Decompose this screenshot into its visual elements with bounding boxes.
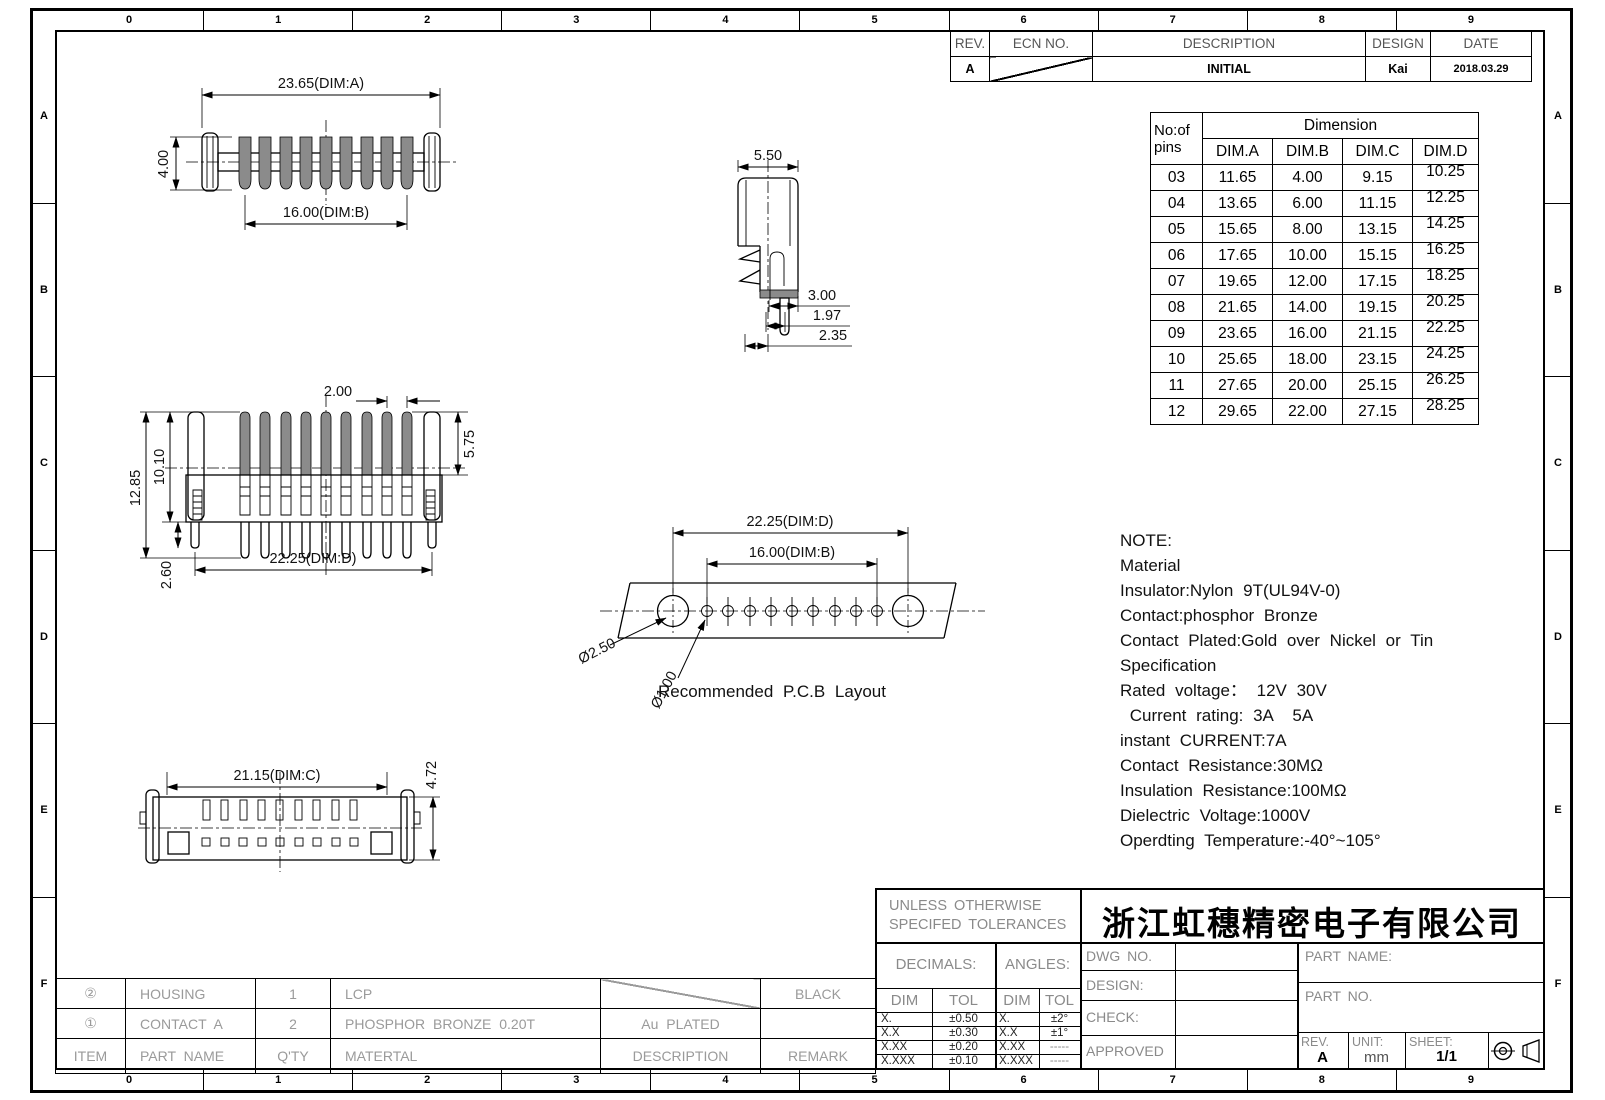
description-empty-cell [601, 979, 761, 1009]
zone-strip-right: A B C D E F [1545, 30, 1571, 1070]
date-header: DATE [1431, 31, 1532, 57]
tolerance-value: ±0.30 [932, 1027, 995, 1039]
table-row: 0923.6516.0021.1522.25 [1151, 321, 1479, 347]
table-row: 1229.6522.0027.1528.25 [1151, 399, 1479, 425]
part-no-label: PART NO. [1305, 988, 1373, 1004]
zone-label: B [33, 204, 55, 378]
table-row: ② HOUSING 1 LCP BLACK [56, 979, 876, 1009]
tolerance-value: ±1° [1039, 1027, 1080, 1039]
qty-header: Q'TY [256, 1039, 331, 1074]
description-value: INITIAL [1093, 57, 1366, 82]
divider [1080, 1035, 1297, 1036]
dim-d-header: DIM.D [1413, 139, 1479, 165]
tolerance-note-line1: UNLESS OTHERWISE [889, 897, 1079, 916]
zone-label: 8 [1248, 10, 1397, 30]
table-row: 0719.6512.0017.1518.25 [1151, 269, 1479, 295]
zone-label: B [1545, 204, 1571, 378]
divider [1297, 982, 1543, 983]
divider [1488, 1032, 1489, 1068]
dimension-group-header: Dimension [1203, 113, 1479, 139]
tolerance-value: X.XX [881, 1041, 907, 1053]
design-header: DESIGN [1366, 31, 1431, 57]
zone-label: 6 [950, 10, 1099, 30]
divider [1297, 1032, 1543, 1033]
table-row: 0311.654.009.1510.25 [1151, 165, 1479, 191]
tolerance-value: ±0.50 [932, 1013, 995, 1025]
zone-label: 7 [1099, 10, 1248, 30]
tolerance-value: ----- [1039, 1055, 1080, 1067]
divider [1175, 942, 1176, 1068]
zone-strip-top: 0 1 2 3 4 5 6 7 8 9 [55, 10, 1545, 30]
divider [1080, 1000, 1297, 1001]
material-header: MATERTAL [331, 1039, 601, 1074]
zone-label: 2 [353, 10, 502, 30]
tol-column-header: TOL [1039, 992, 1080, 1009]
dim-column-header: DIM [995, 992, 1039, 1009]
note-line: Current rating: 3A 5A [1120, 703, 1540, 728]
date-value: 2018.03.29 [1431, 57, 1532, 82]
tolerance-value: X.XXX [999, 1055, 1033, 1067]
note-line: Specification [1120, 653, 1540, 678]
dim-c-header: DIM.C [1343, 139, 1413, 165]
tolerance-value: X. [881, 1013, 892, 1025]
decimals-label: DECIMALS: [877, 956, 995, 973]
dim-column-header: DIM [877, 992, 932, 1009]
company-name: 浙江虹穗精密电子有限公司 [1085, 897, 1539, 945]
zone-label: 6 [950, 1070, 1099, 1090]
pins-header-line1: No:of [1154, 122, 1201, 139]
rev-value: A [1297, 1049, 1348, 1066]
zone-label: C [1545, 377, 1571, 551]
title-block: UNLESS OTHERWISE SPECIFED TOLERANCES 浙江虹… [875, 888, 1545, 1070]
tolerance-value: X.X [881, 1027, 900, 1039]
zone-strip-left: A B C D E F [33, 30, 55, 1070]
zone-label: A [33, 30, 55, 204]
table-row: 1127.6520.0025.1526.25 [1151, 373, 1479, 399]
table-row: 0617.6510.0015.1516.25 [1151, 243, 1479, 269]
note-line: Contact Plated:Gold over Nickel or Tin [1120, 628, 1540, 653]
parts-table: ② HOUSING 1 LCP BLACK ① CONTACT A 2 PHOS… [55, 978, 876, 1074]
zone-label: E [1545, 724, 1571, 898]
tolerance-value: ±2° [1039, 1013, 1080, 1025]
sheet-label: SHEET: [1409, 1035, 1453, 1049]
design-label: DESIGN: [1086, 977, 1144, 993]
remark-header: REMARK [761, 1039, 876, 1074]
unit-label: UNIT: [1352, 1035, 1383, 1049]
pins-header-line2: pins [1154, 139, 1201, 156]
note-line: Insulation Resistance:100MΩ [1120, 778, 1540, 803]
rev-header: REV. [951, 31, 990, 57]
angles-label: ANGLES: [995, 956, 1080, 973]
zone-label: 9 [1397, 1070, 1545, 1090]
tolerance-value: ±0.20 [932, 1041, 995, 1053]
zone-label: 0 [55, 10, 204, 30]
tolerance-note: UNLESS OTHERWISE SPECIFED TOLERANCES [889, 897, 1079, 935]
table-row: 0413.656.0011.1512.25 [1151, 191, 1479, 217]
note-line: Insulator:Nylon 9T(UL94V-0) [1120, 578, 1540, 603]
table-row: 0821.6514.0019.1520.25 [1151, 295, 1479, 321]
tolerance-value: X. [999, 1013, 1010, 1025]
dimension-table: No:of pins Dimension DIM.A DIM.B DIM.C D… [1150, 112, 1479, 425]
tolerance-note-line2: SPECIFED TOLERANCES [889, 916, 1079, 935]
zone-label: 8 [1248, 1070, 1397, 1090]
note-block: NOTE: Material Insulator:Nylon 9T(UL94V-… [1120, 528, 1540, 853]
zone-label: A [1545, 30, 1571, 204]
zone-label: E [33, 724, 55, 898]
check-label: CHECK: [1086, 1009, 1139, 1025]
zone-label: F [1545, 898, 1571, 1071]
zone-label: D [33, 551, 55, 725]
zone-label: F [33, 898, 55, 1071]
zone-label: 5 [800, 10, 949, 30]
note-line: Contact:phosphor Bronze [1120, 603, 1540, 628]
description-col-header: DESCRIPTION [601, 1039, 761, 1074]
note-line: instant CURRENT:7A [1120, 728, 1540, 753]
parts-table-header-row: ITEM PART NAME Q'TY MATERTAL DESCRIPTION… [56, 1039, 876, 1074]
sheet-value: 1/1 [1405, 1048, 1488, 1065]
design-value: Kai [1366, 57, 1431, 82]
zone-label: 3 [502, 10, 651, 30]
zone-label: 4 [651, 10, 800, 30]
table-row: 0515.658.0013.1514.25 [1151, 217, 1479, 243]
pins-column-header: No:of pins [1151, 113, 1203, 165]
item-header: ITEM [56, 1039, 126, 1074]
zone-label: C [33, 377, 55, 551]
dim-a-header: DIM.A [1203, 139, 1273, 165]
revision-table: REV. ECN NO. DESCRIPTION DESIGN DATE A I… [950, 30, 1532, 82]
tolerance-value: X.XX [999, 1041, 1025, 1053]
part-name-header: PART NAME [126, 1039, 256, 1074]
note-line: Rated voltage： 12V 30V [1120, 678, 1540, 703]
table-row: ① CONTACT A 2 PHOSPHOR BRONZE 0.20T Au P… [56, 1009, 876, 1039]
engineering-drawing-page: 0 1 2 3 4 5 6 7 8 9 0 1 2 3 4 5 6 7 8 9 … [0, 0, 1605, 1100]
dim-b-header: DIM.B [1273, 139, 1343, 165]
projection-symbol-icon [1490, 1036, 1542, 1071]
tolerance-value: X.X [999, 1027, 1018, 1039]
description-header: DESCRIPTION [1093, 31, 1366, 57]
rev-label: REV. [1301, 1035, 1329, 1049]
divider [1080, 970, 1297, 971]
note-line: Material [1120, 553, 1540, 578]
zone-label: 1 [204, 10, 353, 30]
zone-label: 9 [1397, 10, 1545, 30]
note-line: Operdting Temperature:-40°~105° [1120, 828, 1540, 853]
zone-label: 7 [1099, 1070, 1248, 1090]
note-line: Dielectric Voltage:1000V [1120, 803, 1540, 828]
tolerance-value: ----- [1039, 1041, 1080, 1053]
table-row: 1025.6518.0023.1524.25 [1151, 347, 1479, 373]
tol-column-header: TOL [932, 992, 995, 1009]
approved-label: APPROVED [1086, 1043, 1164, 1059]
ecn-value-cell [990, 57, 1093, 82]
tolerance-value: X.XXX [881, 1055, 915, 1067]
ecn-header: ECN NO. [990, 31, 1093, 57]
divider [1080, 890, 1082, 1068]
tolerance-value: ±0.10 [932, 1055, 995, 1067]
zone-label: D [1545, 551, 1571, 725]
dwg-no-label: DWG NO. [1086, 948, 1152, 964]
unit-value: mm [1348, 1049, 1405, 1066]
divider [877, 988, 1080, 989]
note-line: Contact Resistance:30MΩ [1120, 753, 1540, 778]
rev-value: A [951, 57, 990, 82]
note-line: NOTE: [1120, 528, 1540, 553]
part-name-label: PART NAME: [1305, 948, 1392, 964]
